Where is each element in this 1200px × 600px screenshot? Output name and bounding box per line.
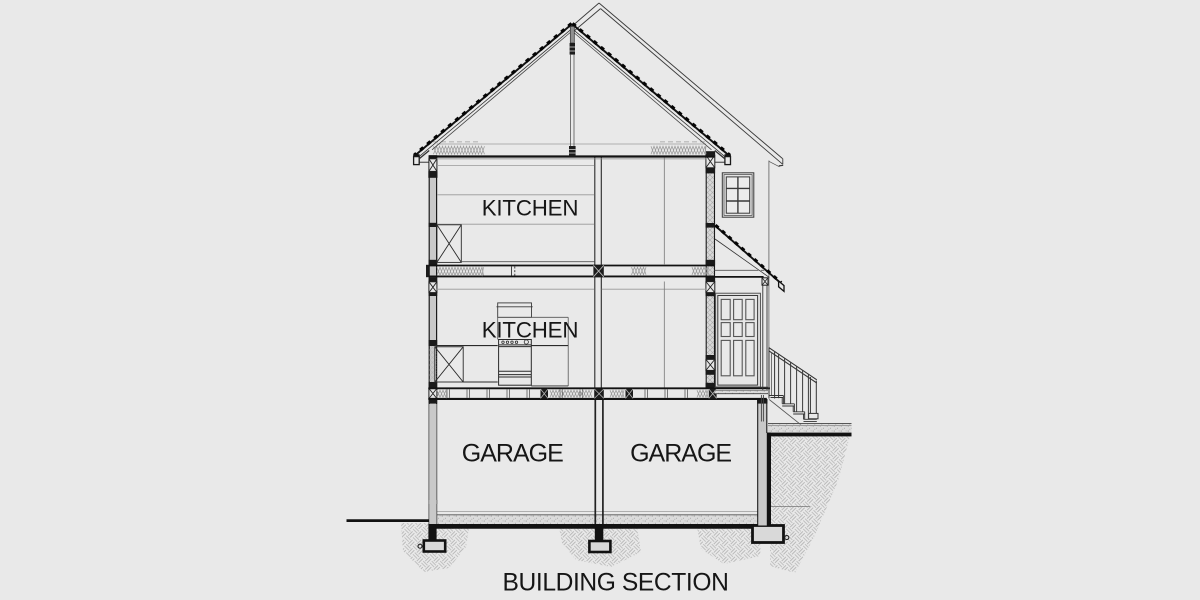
svg-text:KITCHEN: KITCHEN [482,196,578,221]
svg-text:GARAGE: GARAGE [462,439,563,467]
svg-text:BUILDING SECTION: BUILDING SECTION [503,570,729,597]
svg-text:GARAGE: GARAGE [630,439,731,467]
svg-text:KITCHEN: KITCHEN [482,318,578,343]
